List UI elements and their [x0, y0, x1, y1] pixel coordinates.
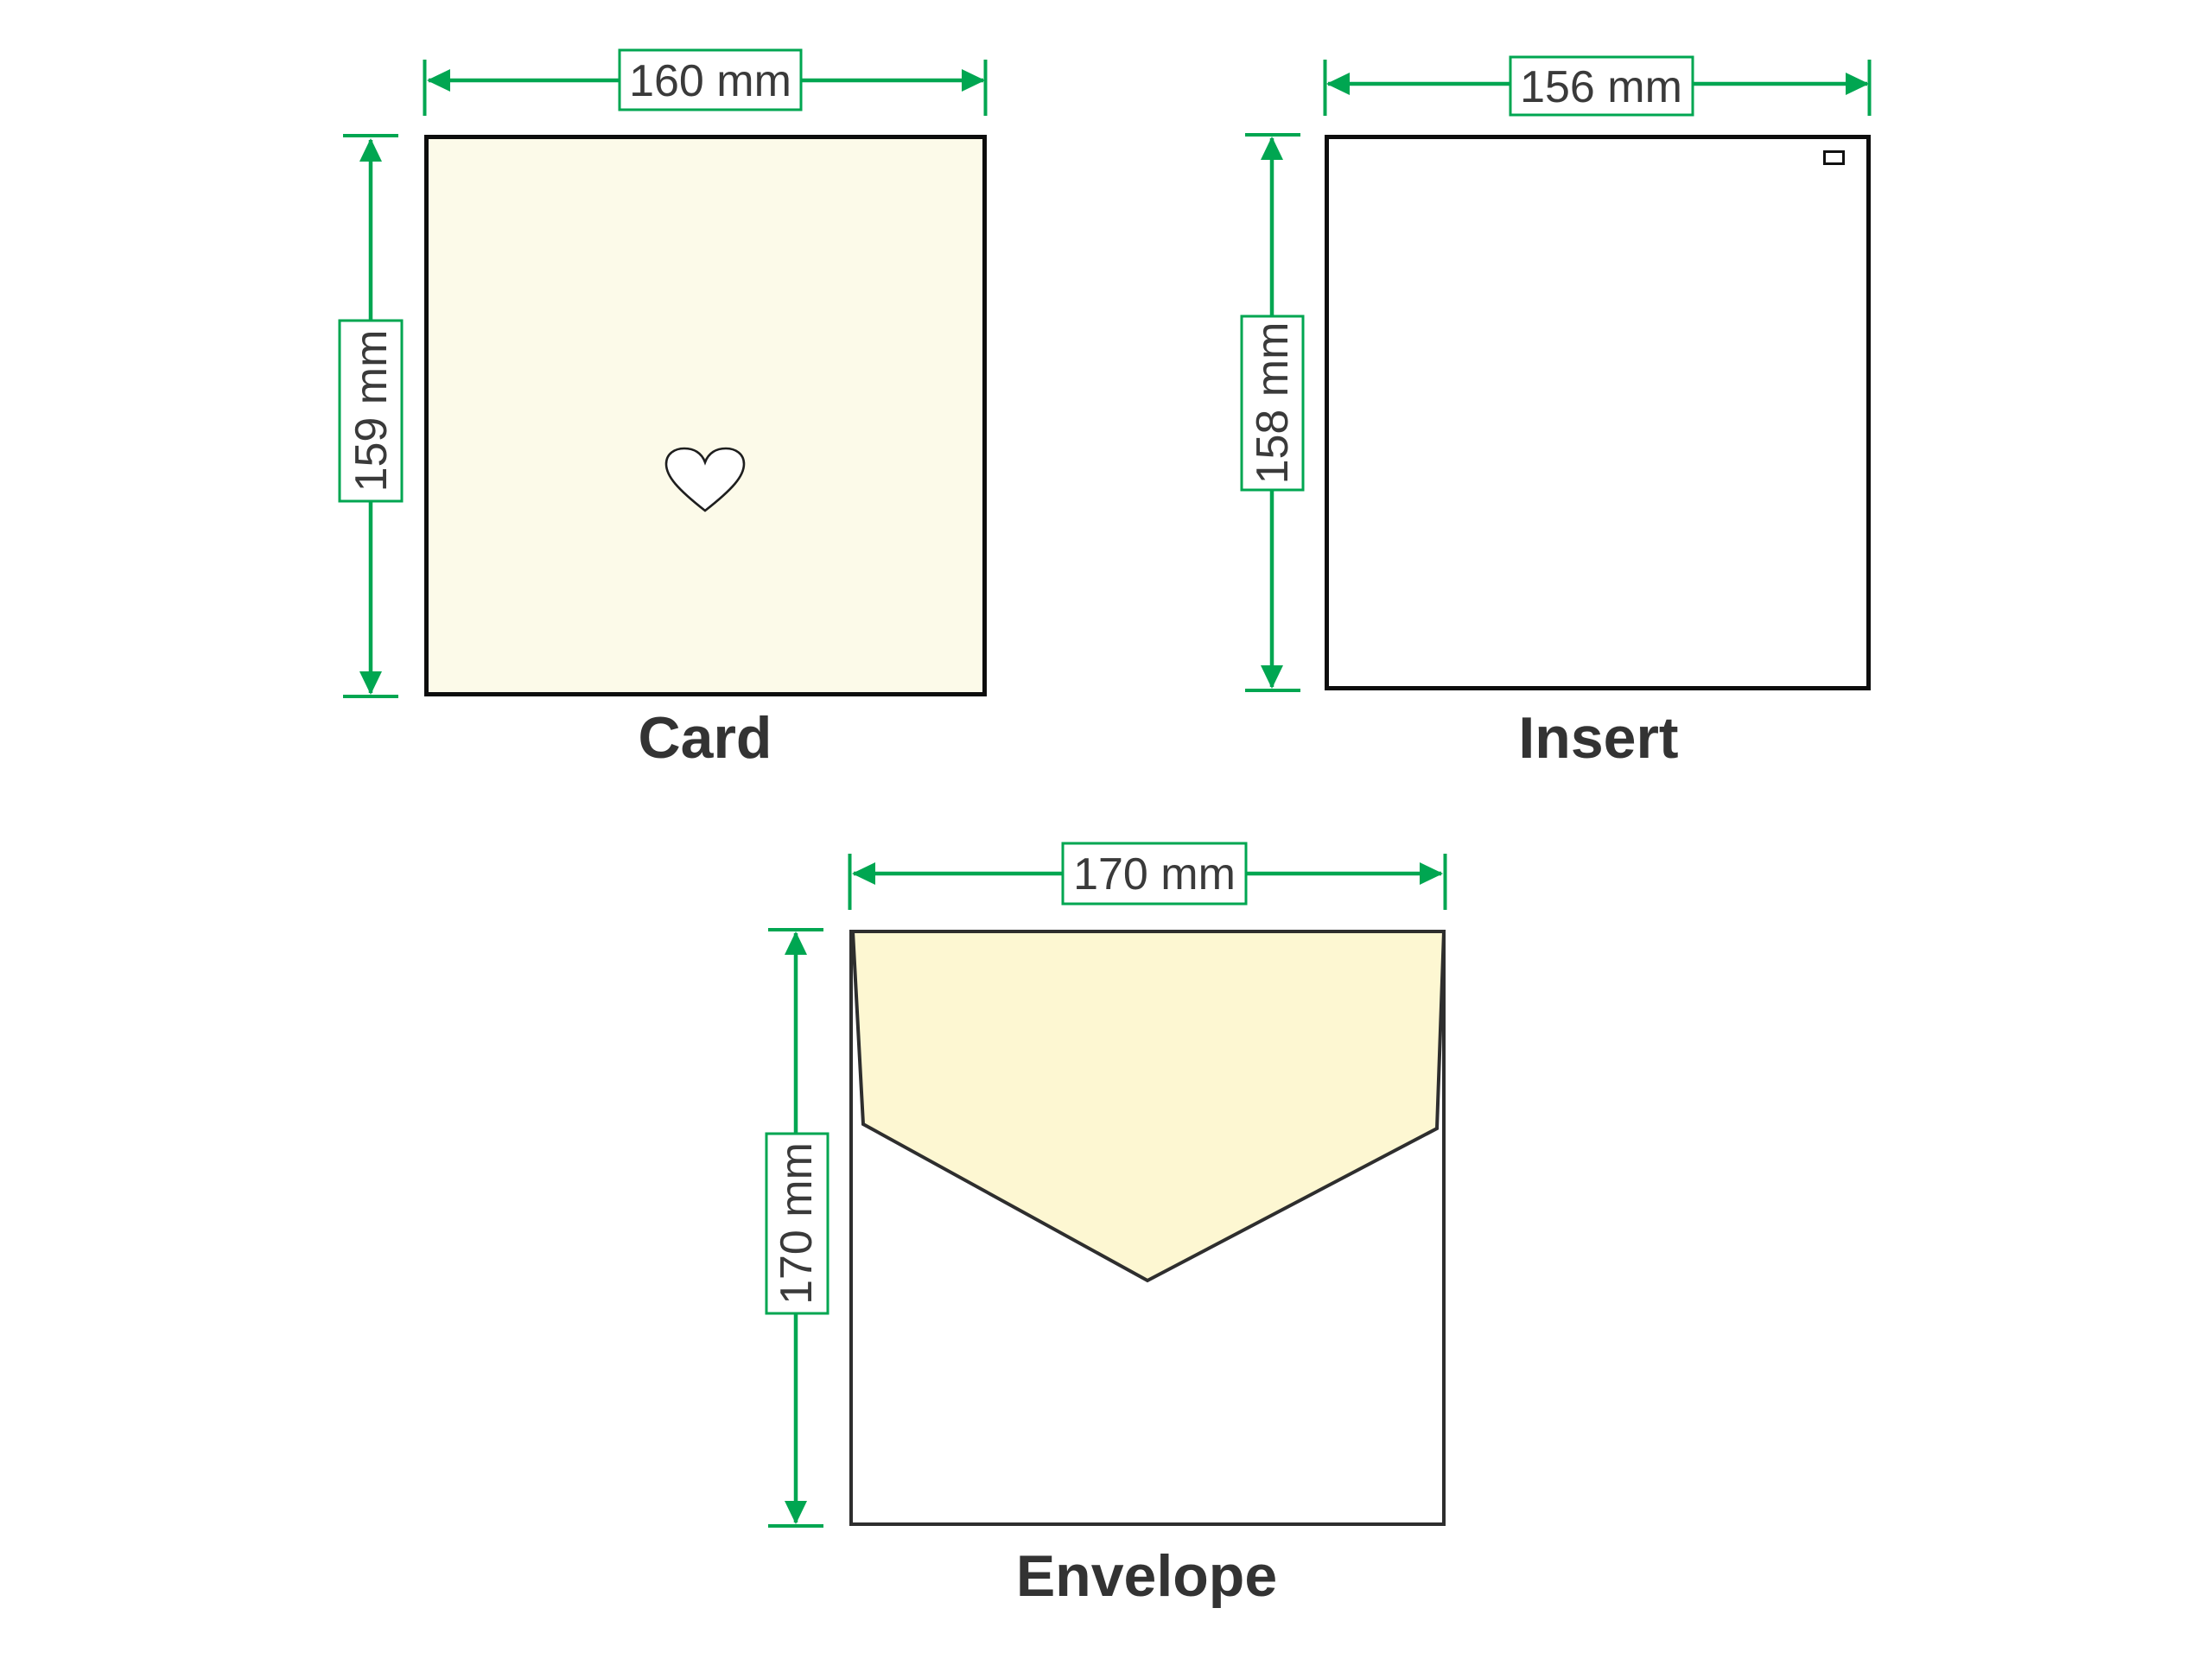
svg-text:170 mm: 170 mm — [1073, 849, 1236, 899]
svg-text:Insert: Insert — [1518, 705, 1678, 771]
svg-text:170 mm: 170 mm — [772, 1142, 822, 1305]
svg-text:159 mm: 159 mm — [346, 330, 397, 493]
svg-text:156 mm: 156 mm — [1520, 62, 1682, 112]
svg-text:Card: Card — [639, 705, 772, 771]
svg-text:160 mm: 160 mm — [629, 56, 791, 106]
svg-text:158 mm: 158 mm — [1248, 322, 1298, 485]
svg-text:Envelope: Envelope — [1016, 1543, 1277, 1609]
